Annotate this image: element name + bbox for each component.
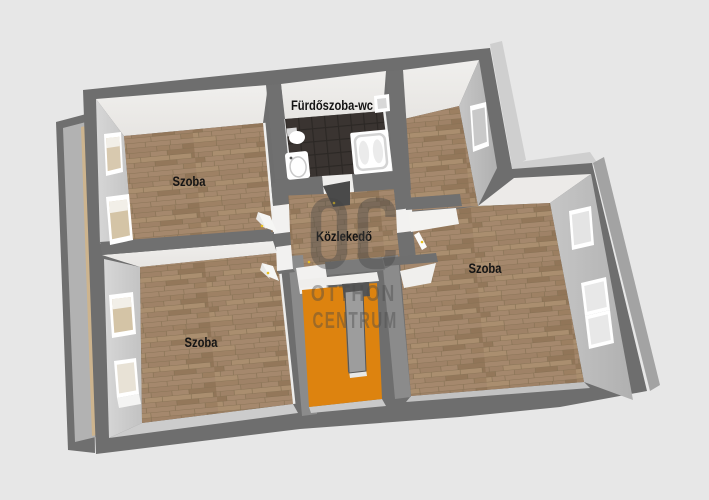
svg-text:CENTRUM: CENTRUM [312, 308, 397, 334]
svg-text:Szoba: Szoba [469, 261, 502, 276]
svg-text:Szoba: Szoba [173, 174, 206, 189]
svg-text:Szoba: Szoba [185, 335, 218, 350]
svg-text:Fürdőszoba-wc: Fürdőszoba-wc [291, 98, 373, 113]
svg-text:OTTHON: OTTHON [311, 281, 396, 307]
